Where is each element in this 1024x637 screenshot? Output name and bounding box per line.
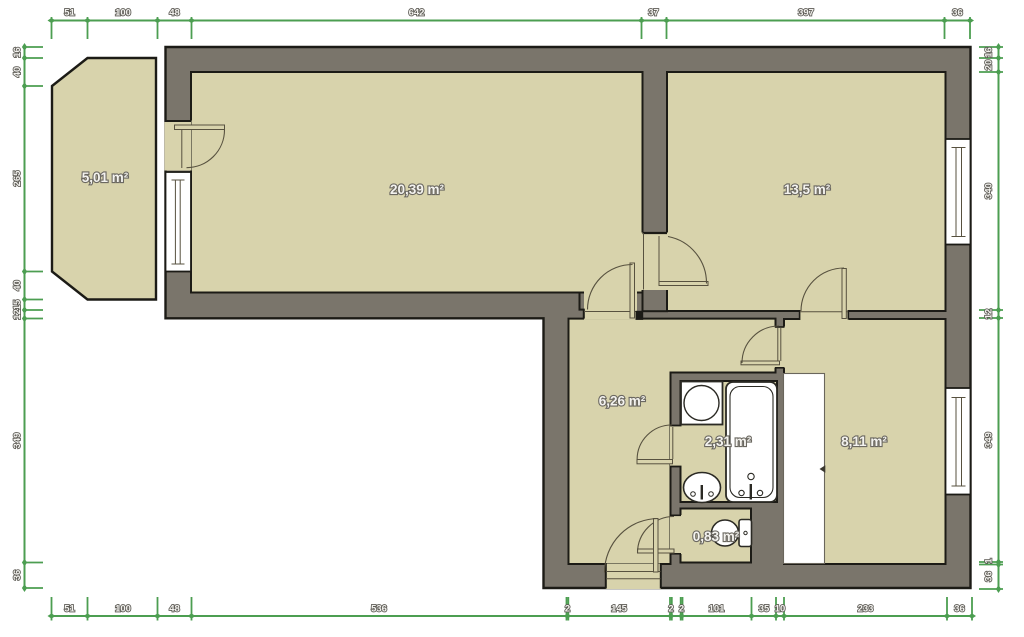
svg-text:10: 10 bbox=[775, 604, 786, 615]
svg-text:101: 101 bbox=[709, 604, 726, 615]
svg-text:233: 233 bbox=[858, 604, 874, 615]
svg-text:20,39 m²: 20,39 m² bbox=[390, 182, 445, 197]
svg-text:1: 1 bbox=[984, 558, 995, 564]
svg-text:397: 397 bbox=[798, 8, 814, 19]
svg-text:349: 349 bbox=[984, 432, 995, 448]
svg-text:642: 642 bbox=[409, 8, 425, 19]
svg-text:40: 40 bbox=[12, 280, 23, 291]
svg-text:35: 35 bbox=[759, 604, 770, 615]
svg-text:13,5 m²: 13,5 m² bbox=[784, 182, 831, 197]
svg-text:36: 36 bbox=[954, 604, 965, 615]
svg-text:265: 265 bbox=[12, 170, 23, 187]
svg-text:51: 51 bbox=[64, 604, 75, 615]
svg-text:48: 48 bbox=[169, 8, 180, 19]
svg-text:2: 2 bbox=[565, 604, 570, 615]
svg-text:12: 12 bbox=[12, 309, 23, 320]
svg-text:37: 37 bbox=[648, 8, 659, 19]
svg-text:536: 536 bbox=[371, 604, 387, 615]
svg-text:2: 2 bbox=[679, 604, 684, 615]
svg-text:2,31 m²: 2,31 m² bbox=[705, 434, 752, 449]
svg-text:40: 40 bbox=[12, 67, 23, 78]
svg-text:36: 36 bbox=[952, 8, 963, 19]
svg-text:15: 15 bbox=[12, 299, 23, 310]
svg-text:100: 100 bbox=[115, 604, 131, 615]
svg-text:100: 100 bbox=[115, 8, 131, 19]
svg-text:36: 36 bbox=[12, 570, 23, 581]
svg-text:16: 16 bbox=[12, 47, 23, 58]
svg-text:20: 20 bbox=[984, 60, 995, 71]
svg-text:340: 340 bbox=[984, 183, 995, 199]
svg-text:48: 48 bbox=[169, 604, 180, 615]
svg-text:2: 2 bbox=[668, 604, 673, 615]
svg-text:8,11 m²: 8,11 m² bbox=[841, 434, 887, 449]
svg-text:5,01 m²: 5,01 m² bbox=[82, 170, 129, 185]
svg-text:6,26 m²: 6,26 m² bbox=[599, 394, 646, 409]
svg-text:12: 12 bbox=[984, 309, 995, 320]
svg-text:0,83 m²: 0,83 m² bbox=[693, 529, 740, 544]
svg-text:36: 36 bbox=[984, 571, 995, 582]
svg-text:16: 16 bbox=[984, 47, 995, 58]
svg-text:51: 51 bbox=[64, 8, 75, 19]
svg-text:145: 145 bbox=[611, 604, 628, 615]
svg-text:349: 349 bbox=[12, 433, 23, 449]
